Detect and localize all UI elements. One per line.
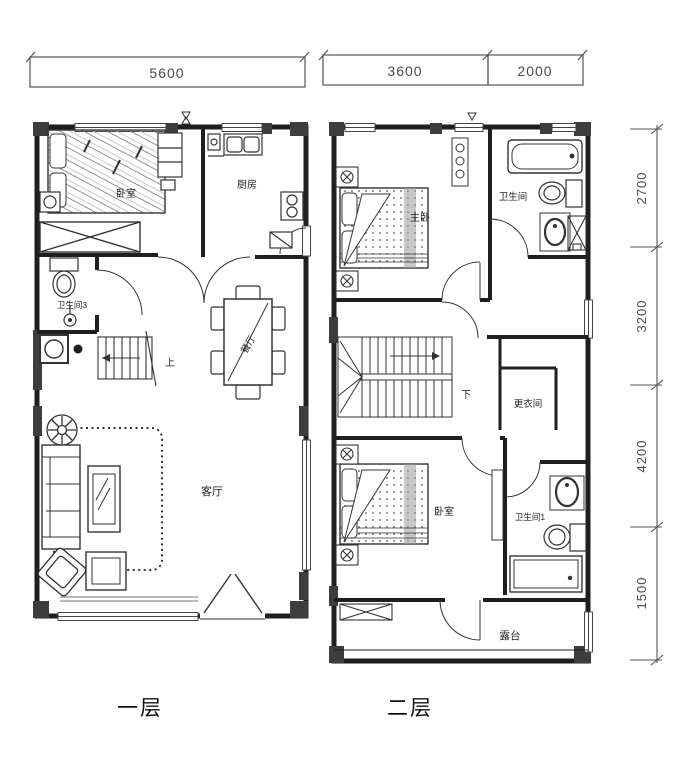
bathroom-bottom-label: 卫生间1 (515, 512, 546, 522)
basin-bottom (550, 476, 584, 510)
dim-5600: 5600 (149, 65, 184, 81)
floor1-bathroom-label: 卫生间3 (57, 300, 88, 310)
floor1-caption: 一层 (117, 697, 163, 720)
floor2-bed (340, 464, 428, 544)
floor1-nightstand (40, 192, 60, 212)
floor2-caption: 二层 (387, 697, 433, 720)
bathroom-top-label: 卫生间 (499, 191, 528, 203)
stairs-up-label: 上 (165, 357, 175, 369)
plant-icon (47, 415, 77, 445)
dim-4200: 4200 (634, 440, 649, 473)
terrace-planter (340, 604, 392, 620)
sofa (42, 445, 80, 549)
dim-3600: 3600 (387, 63, 422, 79)
kitchen-label: 厨房 (237, 178, 257, 191)
bedroom-cabinet (492, 470, 503, 540)
floor1-stairs (98, 331, 156, 386)
floor2-bedroom-label: 卧室 (434, 505, 454, 518)
floor2-stairs (338, 337, 452, 417)
terrace-label: 露台 (500, 629, 521, 642)
living-label: 客厅 (201, 484, 223, 498)
dim-2700: 2700 (634, 172, 649, 205)
floor-plan-sheet: 5600 3600 2000 2700 3200 4200 1500 (0, 0, 676, 783)
shower-tray (510, 556, 582, 592)
master-bed (340, 188, 428, 268)
floor1-toilet (50, 258, 78, 297)
dim-3200: 3200 (634, 300, 649, 333)
floor-plan-drawing: 5600 3600 2000 2700 3200 4200 1500 (0, 0, 676, 783)
master-bedroom-label: 主卧 (410, 211, 430, 224)
floor1-wardrobe (40, 222, 140, 252)
basin-top (540, 213, 570, 251)
dressing-room-label: 更衣间 (514, 398, 543, 410)
dim-1500: 1500 (634, 577, 649, 610)
water-heater-icon (452, 138, 468, 186)
bathtub (508, 140, 582, 173)
dim-2000: 2000 (517, 63, 552, 79)
stairs-down-label: 下 (461, 390, 471, 401)
floor1-bed (48, 130, 165, 213)
side-table (86, 552, 126, 590)
toilet-bottom (544, 524, 586, 551)
coffee-table (88, 466, 120, 532)
floor1-bedroom-label: 卧室 (116, 187, 136, 200)
